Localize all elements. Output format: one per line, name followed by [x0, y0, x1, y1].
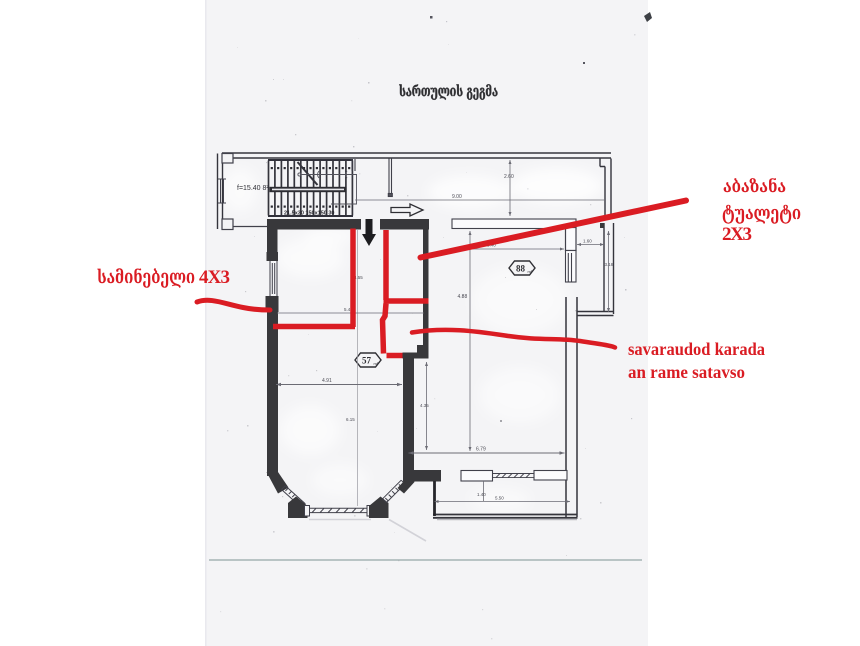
svg-text:f=15.40 8²: f=15.40 8²: [237, 185, 269, 192]
svg-text:m²: m²: [528, 269, 533, 274]
svg-text:2.60: 2.60: [504, 174, 514, 180]
svg-text:4.35: 4.35: [420, 403, 429, 408]
svg-text:1.40: 1.40: [477, 492, 486, 497]
svg-text:2X3: 2X3: [722, 224, 752, 245]
svg-text:21.5x30 150x150 30: 21.5x30 150x150 30: [284, 211, 334, 217]
svg-text:6.79: 6.79: [476, 447, 486, 453]
svg-text:m²: m²: [374, 361, 379, 366]
svg-text:savaraudod karada: savaraudod karada: [628, 339, 765, 359]
svg-text:88: 88: [516, 264, 526, 274]
svg-text:1.60: 1.60: [583, 239, 592, 244]
svg-text:9.00: 9.00: [452, 194, 462, 200]
svg-text:4.88: 4.88: [458, 294, 468, 300]
svg-text:5.50: 5.50: [495, 496, 504, 501]
svg-text:6.15: 6.15: [346, 417, 355, 422]
svg-text:4X3: 4X3: [199, 267, 230, 288]
svg-text:4.91: 4.91: [322, 378, 332, 384]
svg-text:57: 57: [362, 356, 372, 366]
svg-text:an rame satavso: an rame satavso: [628, 362, 745, 382]
svg-text:3.18: 3.18: [605, 262, 614, 267]
